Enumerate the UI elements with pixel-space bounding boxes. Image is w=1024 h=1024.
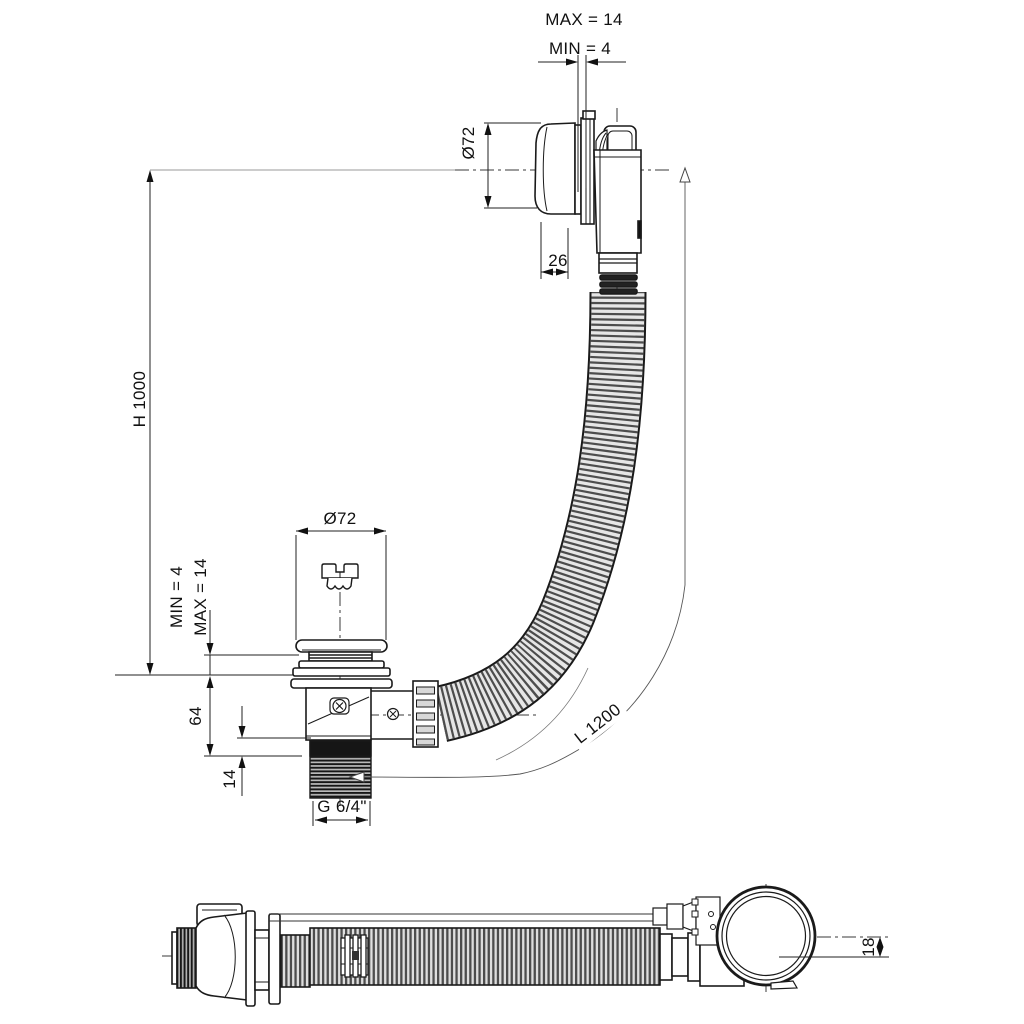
drawing-canvas: MAX = 14 MIN = 4 Ø72 26 H 1000 MIN = 4 M… <box>0 0 1024 1024</box>
side-view <box>162 884 889 1006</box>
label-axis-offset: 18 <box>859 937 879 957</box>
side-overflow-end <box>653 887 815 989</box>
label-overall-height: H 1000 <box>130 371 150 428</box>
label-overflow-diameter: Ø72 <box>459 126 479 159</box>
technical-drawing-svg <box>0 0 1024 1024</box>
label-body-height: 64 <box>186 706 206 726</box>
label-floor-gap-max: MAX = 14 <box>191 558 211 636</box>
side-drain-end <box>172 904 310 1006</box>
label-wall-gap-max: MAX = 14 <box>545 10 623 30</box>
label-thread-free-length: 14 <box>220 769 240 789</box>
hose-clip <box>341 935 368 977</box>
drain-waste-body <box>291 564 438 798</box>
label-plug-diameter: Ø72 <box>323 509 356 529</box>
flexible-hose <box>441 292 618 714</box>
label-cap-depth: 26 <box>548 251 568 271</box>
label-wall-gap-min: MIN = 4 <box>549 39 611 59</box>
label-thread-size: G 6/4" <box>317 797 366 817</box>
label-floor-gap-min: MIN = 4 <box>167 566 187 628</box>
cable-lines <box>269 914 653 921</box>
